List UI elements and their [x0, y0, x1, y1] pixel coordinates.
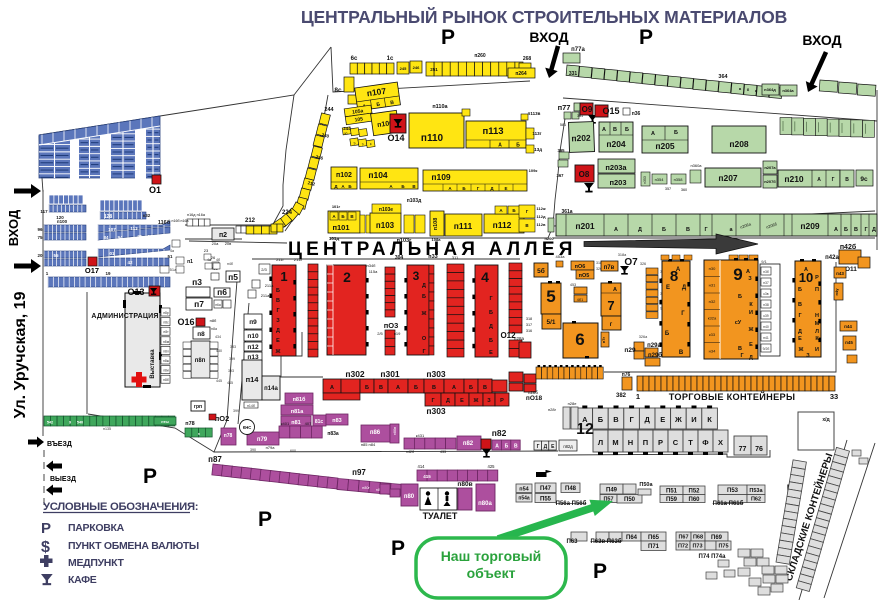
svg-text:п1: п1	[187, 259, 193, 265]
svg-text:430: 430	[216, 349, 222, 353]
svg-text:пО5: пО5	[579, 273, 590, 279]
svg-text:п83а: п83а	[327, 431, 339, 437]
svg-text:п103д: п103д	[407, 198, 422, 204]
svg-text:п14: п14	[246, 375, 260, 384]
svg-text:ВЪЕЗД: ВЪЕЗД	[47, 441, 72, 448]
svg-text:З: З	[276, 318, 280, 324]
svg-text:128: 128	[104, 214, 113, 220]
svg-text:2: 2	[343, 269, 351, 285]
svg-text:З: З	[806, 353, 810, 359]
svg-text:В: В	[514, 444, 518, 450]
svg-text:Д: Д	[749, 355, 753, 361]
svg-text:П50: П50	[624, 497, 636, 503]
svg-text:И: И	[691, 415, 696, 424]
svg-text:96: 96	[37, 227, 43, 232]
svg-text:Р: Р	[41, 520, 51, 537]
svg-text:п81: п81	[291, 420, 300, 426]
svg-text:П72: П72	[678, 544, 688, 550]
svg-text:К: К	[707, 415, 712, 424]
svg-text:581: 581	[560, 123, 566, 127]
svg-text:п80г: п80г	[362, 486, 370, 490]
svg-text:п6а: п6а	[215, 303, 221, 307]
svg-text:П65: П65	[648, 535, 660, 541]
svg-text:А: А	[498, 143, 502, 149]
svg-text:453а: 453а	[556, 254, 566, 259]
svg-text:П67: П67	[678, 535, 688, 541]
svg-text:В: В	[613, 415, 619, 424]
svg-text:407: 407	[305, 421, 312, 426]
svg-text:211х: 211х	[294, 257, 302, 262]
svg-text:Б: Б	[469, 385, 473, 391]
svg-text:77: 77	[739, 446, 747, 453]
svg-text:пО18: пО18	[526, 395, 543, 402]
svg-text:ТОРГОВЫЕ КОНТЕЙНЕРЫ: ТОРГОВЫЕ КОНТЕЙНЕРЫ	[669, 391, 796, 402]
svg-text:Е: Е	[749, 342, 753, 348]
svg-text:212: 212	[245, 218, 256, 224]
svg-text:О9: О9	[582, 105, 593, 114]
svg-text:364: 364	[718, 74, 728, 80]
svg-text:п33: п33	[428, 254, 437, 260]
svg-text:п102: п102	[336, 172, 352, 179]
svg-text:пО6: пО6	[575, 264, 586, 270]
svg-text:П61а П61б: П61а П61б	[713, 500, 744, 507]
svg-text:А: А	[602, 127, 606, 133]
svg-text:п81б: п81б	[293, 396, 306, 403]
svg-text:1: 1	[280, 269, 287, 284]
svg-text:В: В	[845, 177, 849, 183]
svg-text:101г: 101г	[332, 204, 341, 209]
svg-text:П56а П56б: П56а П56б	[556, 500, 587, 507]
svg-text:А: А	[746, 269, 750, 275]
svg-text:5/1: 5/1	[546, 319, 555, 326]
svg-text:Б: Б	[489, 338, 493, 344]
svg-text:Ф: Ф	[702, 438, 709, 447]
svg-text:Г: Г	[681, 311, 685, 317]
svg-text:4а: 4а	[170, 249, 174, 253]
svg-text:81с: 81с	[315, 419, 324, 425]
svg-text:п104: п104	[368, 170, 388, 180]
svg-text:п83: п83	[332, 418, 341, 424]
svg-text:382: 382	[616, 393, 627, 399]
svg-text:331: 331	[569, 71, 578, 77]
svg-text:42: 42	[127, 260, 133, 265]
svg-text:393: 393	[228, 369, 234, 373]
svg-text:к32: к32	[143, 213, 151, 218]
svg-text:9: 9	[69, 421, 71, 425]
svg-text:п82: п82	[492, 428, 507, 438]
svg-text:п8б: п8б	[163, 378, 169, 382]
svg-text:С: С	[673, 438, 679, 447]
svg-text:З: З	[748, 276, 752, 282]
svg-text:326: 326	[640, 262, 646, 266]
svg-text:ВХОД: ВХОД	[529, 29, 568, 45]
svg-text:п110: п110	[421, 133, 444, 144]
svg-text:О16: О16	[177, 317, 194, 327]
svg-text:П47: П47	[540, 486, 552, 492]
svg-text:Р: Р	[441, 26, 455, 49]
svg-text:п301: п301	[380, 369, 400, 379]
svg-text:Н: Н	[628, 438, 633, 447]
svg-text:п36: п36	[632, 111, 641, 117]
svg-text:п54а: п54а	[518, 496, 530, 502]
svg-text:Д: Д	[446, 398, 450, 404]
svg-text:О17: О17	[85, 266, 99, 275]
svg-text:п358: п358	[674, 177, 684, 182]
svg-text:Б: Б	[516, 143, 520, 149]
svg-text:105: 105	[354, 116, 363, 123]
svg-text:п16б п16а: п16б п16а	[172, 219, 189, 223]
svg-text:107: 107	[108, 227, 116, 232]
svg-text:В: В	[679, 350, 684, 356]
svg-text:Д: Д	[544, 444, 548, 450]
svg-text:Р: Р	[658, 438, 663, 447]
svg-text:7: 7	[607, 298, 614, 313]
svg-text:224: 224	[282, 210, 293, 216]
svg-text:19: 19	[105, 271, 111, 276]
svg-text:п7: п7	[194, 299, 204, 309]
svg-text:4б: 4б	[216, 258, 220, 262]
svg-text:75: 75	[37, 235, 43, 240]
svg-text:п302: п302	[345, 369, 365, 379]
svg-text:н34: н34	[709, 349, 716, 354]
svg-text:п4б: п4б	[227, 262, 233, 266]
svg-text:01: 01	[109, 251, 115, 256]
svg-text:433: 433	[440, 450, 446, 454]
svg-text:Б: Б	[625, 127, 629, 133]
svg-text:п8а: п8а	[211, 327, 217, 331]
svg-text:О14: О14	[387, 133, 404, 143]
svg-text:Е: Е	[276, 338, 280, 344]
svg-text:п207: п207	[718, 173, 738, 183]
svg-text:п4у: п4у	[834, 288, 839, 296]
svg-text:Л: Л	[598, 438, 603, 447]
svg-text:В: В	[379, 385, 383, 391]
svg-text:$: $	[41, 539, 50, 556]
svg-text:п78: п78	[224, 433, 233, 439]
svg-text:п16д п16а: п16д п16а	[187, 213, 206, 217]
svg-text:н41: н41	[763, 336, 769, 340]
svg-text:п8с: п8с	[163, 321, 169, 325]
svg-text:О15: О15	[602, 106, 619, 116]
svg-text:п8и: п8и	[163, 369, 169, 373]
svg-text:Б: Б	[844, 227, 848, 233]
svg-text:п80а: п80а	[478, 501, 492, 507]
svg-text:33: 33	[830, 392, 838, 401]
svg-text:9/2б: 9/2б	[763, 347, 770, 351]
svg-text:76: 76	[755, 446, 763, 453]
svg-text:Д: Д	[638, 227, 642, 233]
svg-text:Д: Д	[489, 324, 493, 330]
svg-text:п8ж: п8ж	[163, 359, 170, 363]
svg-text:А: А	[676, 267, 681, 273]
svg-text:ЦЕНТРАЛЬНЫЙ РЫНОК СТРОИТЕЛЬНЫХ: ЦЕНТРАЛЬНЫЙ РЫНОК СТРОИТЕЛЬНЫХ МАТЕРИАЛО…	[301, 6, 787, 27]
svg-text:Р: Р	[639, 26, 653, 49]
svg-text:542: 542	[47, 421, 53, 425]
svg-text:н40: н40	[763, 325, 769, 329]
svg-text:Г: Г	[537, 444, 540, 450]
svg-text:п7г: п7г	[601, 337, 606, 344]
svg-text:96: 96	[147, 234, 153, 239]
svg-text:20: 20	[37, 253, 43, 258]
svg-text:Б: Б	[365, 385, 369, 391]
svg-text:6с: 6с	[351, 56, 358, 62]
svg-text:п101: п101	[332, 223, 349, 232]
svg-text:п78: п78	[185, 421, 194, 427]
svg-text:ПУНКТ ОБМЕНА ВАЛЮТЫ: ПУНКТ ОБМЕНА ВАЛЮТЫ	[68, 540, 199, 552]
svg-text:п100: п100	[57, 219, 68, 224]
svg-text:ВЫЕЗД: ВЫЕЗД	[50, 476, 76, 483]
svg-text:п201: п201	[575, 221, 595, 231]
svg-text:З: З	[487, 398, 491, 404]
svg-text:п3: п3	[192, 277, 202, 287]
svg-text:Е: Е	[460, 398, 464, 404]
svg-text:Д: Д	[872, 227, 876, 233]
svg-text:365: 365	[558, 148, 566, 153]
svg-text:3: 3	[413, 269, 420, 283]
svg-text:п364д: п364д	[764, 87, 776, 92]
svg-text:109к: 109к	[529, 168, 538, 173]
svg-text:п29б: п29б	[648, 352, 662, 359]
svg-text:51а: 51а	[170, 267, 177, 272]
svg-text:244: 244	[343, 126, 351, 131]
svg-text:п14а: п14а	[264, 386, 278, 392]
svg-text:п12: п12	[247, 344, 259, 351]
svg-text:425: 425	[488, 464, 496, 469]
svg-text:357: 357	[665, 187, 671, 191]
svg-text:Б: Б	[422, 294, 426, 300]
svg-text:Ж: Ж	[473, 398, 479, 404]
svg-text:п97: п97	[352, 468, 366, 477]
svg-text:п103: п103	[376, 221, 395, 230]
svg-text:12: 12	[576, 421, 594, 438]
svg-text:п79а: п79а	[266, 445, 276, 450]
svg-text:П53а: П53а	[749, 488, 763, 494]
svg-text:4а: 4а	[207, 258, 211, 262]
svg-text:Г: Г	[629, 415, 634, 424]
svg-text:Н: Н	[815, 313, 819, 319]
svg-text:п85 п84: п85 п84	[361, 442, 376, 447]
svg-text:Е: Е	[660, 415, 665, 424]
svg-text:4б1: 4б1	[577, 298, 583, 302]
svg-text:п8л: п8л	[163, 349, 169, 353]
svg-text:И: И	[749, 310, 753, 316]
svg-text:А: А	[396, 385, 400, 391]
svg-text:П: П	[643, 438, 648, 447]
svg-text:к3в: к3в	[763, 292, 768, 296]
svg-text:Р: Р	[815, 275, 819, 281]
svg-text:П75: П75	[718, 544, 728, 550]
svg-text:8с: 8с	[334, 87, 342, 94]
svg-text:п364а: п364а	[782, 88, 794, 93]
svg-text:211г: 211г	[276, 257, 284, 262]
svg-text:Т: Т	[688, 438, 693, 447]
svg-text:п360а: п360а	[690, 163, 702, 168]
svg-text:М: М	[612, 438, 618, 447]
svg-text:23: 23	[204, 248, 209, 253]
svg-text:П55: П55	[540, 496, 552, 502]
svg-text:п28е: п28е	[568, 401, 578, 406]
svg-text:Б: Б	[505, 444, 509, 450]
svg-text:А: А	[834, 227, 838, 233]
svg-text:П62: П62	[751, 497, 761, 503]
svg-text:113: 113	[130, 226, 138, 231]
svg-text:А: А	[651, 131, 655, 137]
svg-text:326а: 326а	[639, 335, 648, 339]
svg-text:нты: нты	[161, 420, 168, 424]
svg-text:Е: Е	[666, 285, 670, 291]
svg-text:п87: п87	[208, 455, 222, 464]
svg-text:н32: н32	[709, 299, 716, 304]
svg-text:Ж: Ж	[421, 311, 427, 317]
svg-text:п81а: п81а	[291, 409, 304, 415]
svg-text:п108: п108	[433, 218, 439, 231]
svg-text:А: А	[613, 287, 617, 293]
svg-text:414: 414	[418, 464, 426, 469]
svg-text:п2: п2	[219, 232, 227, 239]
svg-text:Г: Г	[526, 209, 529, 214]
svg-text:П74 П74а: П74 П74а	[699, 554, 727, 560]
svg-text:п28а: п28а	[514, 336, 524, 341]
svg-text:116б: 116б	[158, 219, 171, 226]
svg-text:360: 360	[681, 188, 687, 192]
svg-text:п82: п82	[463, 441, 474, 447]
svg-text:20а: 20а	[212, 241, 219, 246]
svg-text:П69: П69	[711, 535, 723, 541]
svg-text:п34б: п34б	[367, 263, 377, 268]
svg-text:311: 311	[452, 255, 459, 260]
svg-text:390: 390	[250, 448, 256, 452]
svg-text:112ж: 112ж	[536, 206, 545, 211]
svg-text:п19: п19	[394, 331, 401, 336]
svg-text:п111: п111	[454, 221, 473, 231]
svg-text:н30: н30	[709, 266, 716, 271]
svg-text:Х: Х	[718, 438, 723, 447]
svg-text:п109: п109	[431, 172, 451, 182]
svg-text:9с: 9с	[860, 176, 868, 183]
svg-text:445: 445	[227, 381, 233, 385]
svg-text:Б: Б	[489, 310, 493, 316]
svg-text:367: 367	[557, 173, 565, 178]
svg-text:п8р: п8р	[163, 311, 169, 315]
svg-text:П63: П63	[567, 539, 579, 545]
svg-text:211а: 211а	[265, 283, 274, 288]
svg-text:112в: 112в	[537, 222, 546, 227]
svg-text:П68: П68	[693, 535, 703, 541]
svg-text:п80: п80	[404, 494, 415, 500]
svg-text:51: 51	[167, 254, 173, 259]
svg-text:П59: П59	[666, 497, 678, 503]
svg-text:н37: н37	[763, 281, 769, 285]
svg-text:Ж: Ж	[748, 327, 754, 333]
svg-text:268: 268	[523, 56, 532, 62]
svg-text:п42а: п42а	[825, 255, 839, 261]
svg-text:А: А	[330, 385, 334, 391]
svg-text:399: 399	[229, 357, 235, 361]
svg-text:251: 251	[430, 67, 438, 72]
svg-text:в: в	[198, 432, 200, 436]
svg-text:п45: п45	[845, 340, 853, 345]
svg-text:П52: П52	[689, 489, 701, 495]
svg-text:Д: Д	[422, 283, 426, 289]
svg-text:КАФЕ: КАФЕ	[68, 574, 97, 586]
svg-text:П50а: П50а	[639, 482, 653, 488]
svg-text:Выставка: Выставка	[150, 349, 156, 379]
svg-text:п135: п135	[103, 427, 111, 431]
svg-text:9: 9	[733, 265, 742, 284]
svg-text:В: В	[686, 227, 690, 233]
svg-text:ПАРКОВКА: ПАРКОВКА	[68, 522, 125, 534]
svg-text:316: 316	[526, 329, 532, 333]
svg-text:пО3: пО3	[384, 321, 399, 330]
svg-text:п103е: п103е	[379, 207, 393, 213]
svg-text:п10: п10	[247, 333, 259, 340]
svg-text:Наш торговый: Наш торговый	[441, 548, 542, 564]
svg-text:245: 245	[400, 66, 407, 71]
svg-text:п354: п354	[655, 177, 665, 182]
svg-text:п264: п264	[515, 71, 527, 77]
svg-text:П73: П73	[692, 544, 702, 550]
svg-text:п77а: п77а	[571, 47, 585, 53]
svg-text:п82д: п82д	[563, 444, 573, 449]
svg-text:Ж: Ж	[275, 349, 281, 355]
svg-text:п44: п44	[844, 324, 852, 329]
svg-text:Е: Е	[489, 350, 493, 356]
svg-text:П60: П60	[689, 497, 701, 503]
svg-text:к33: к33	[709, 332, 716, 337]
svg-text:244: 244	[324, 107, 334, 113]
svg-text:п54: п54	[519, 486, 529, 492]
svg-text:п260: п260	[474, 53, 486, 59]
svg-text:п43: п43	[836, 271, 844, 276]
svg-text:П48: П48	[565, 486, 577, 492]
svg-text:грп: грп	[194, 404, 202, 410]
svg-text:Д: Д	[798, 329, 802, 335]
svg-text:А: А	[804, 267, 808, 273]
svg-text:п207б: п207б	[764, 179, 776, 184]
svg-text:н31: н31	[709, 283, 716, 288]
svg-text:п205: п205	[655, 141, 675, 151]
svg-text:94: 94	[117, 235, 123, 240]
svg-text:п14б: п14б	[247, 404, 255, 408]
svg-text:п7в: п7в	[604, 265, 615, 271]
svg-text:п112: п112	[493, 220, 512, 230]
svg-text:5: 5	[546, 287, 555, 306]
svg-text:п29: п29	[624, 347, 636, 354]
svg-text:ТУАЛЕТ: ТУАЛЕТ	[423, 511, 458, 521]
svg-text:115а: 115а	[369, 269, 378, 274]
svg-text:П49: П49	[606, 487, 618, 493]
svg-text:п29а: п29а	[647, 343, 661, 349]
svg-text:304: 304	[395, 255, 404, 261]
svg-text:П71: П71	[648, 544, 660, 550]
svg-text:п86в: п86в	[393, 427, 397, 435]
svg-text:п303: п303	[426, 406, 446, 416]
svg-text:А: А	[495, 444, 499, 450]
svg-text:н353: н353	[643, 176, 647, 184]
svg-text:А: А	[614, 227, 618, 233]
svg-text:УСЛОВНЫЕ ОБОЗНАЧЕНИЯ:: УСЛОВНЫЕ ОБОЗНАЧЕНИЯ:	[43, 501, 198, 513]
svg-text:к401: к401	[281, 421, 290, 426]
svg-text:434: 434	[215, 335, 221, 339]
svg-text:п6: п6	[217, 287, 227, 297]
svg-text:246: 246	[413, 65, 420, 70]
svg-text:В: В	[738, 346, 742, 352]
svg-text:х/д: х/д	[822, 417, 830, 423]
svg-text:А: А	[452, 385, 456, 391]
svg-text:п210: п210	[784, 174, 804, 184]
svg-text:П63в П63б: П63в П63б	[590, 538, 621, 545]
svg-text:А: А	[817, 177, 821, 183]
